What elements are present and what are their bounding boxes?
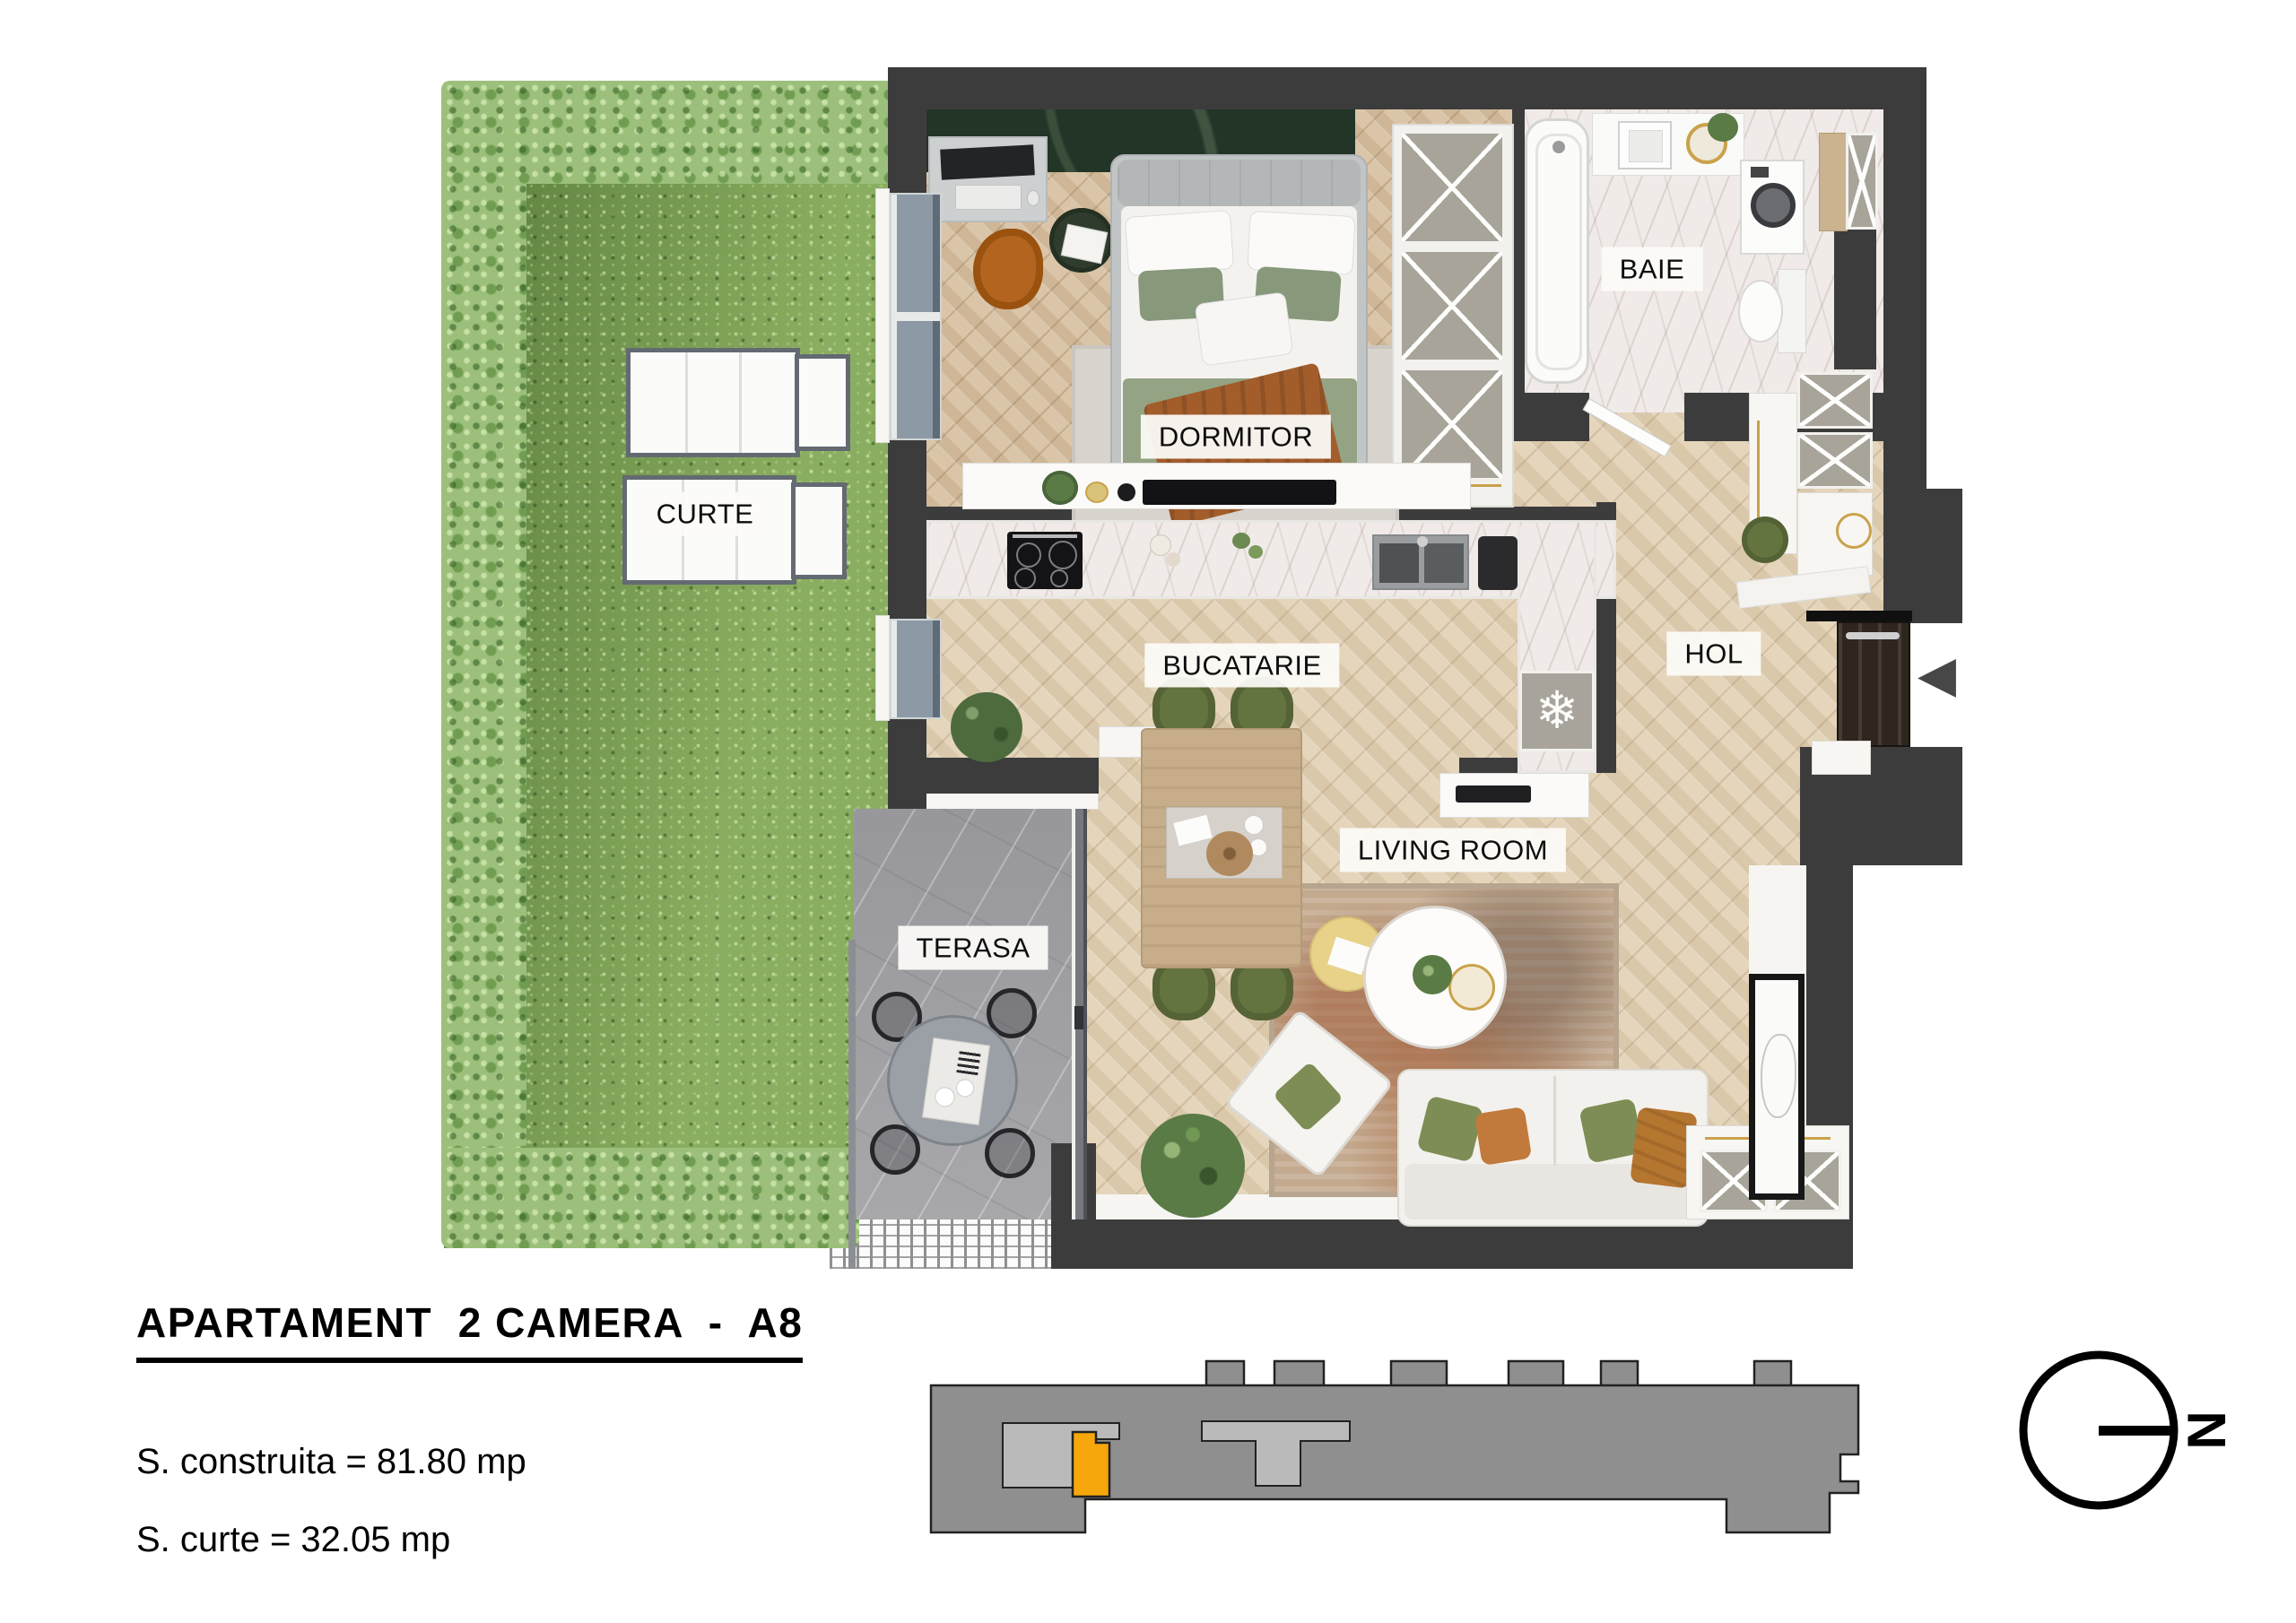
entrance-arrow-icon: ◀ (1918, 649, 1956, 699)
plan-title: APARTAMENT 2 CAMERA - A8 (136, 1298, 803, 1363)
nightstand (1049, 208, 1114, 273)
pillow-white (1125, 210, 1234, 276)
table-plant (1413, 955, 1452, 994)
black-dish (1118, 483, 1135, 501)
terrace-sliding-door (1072, 809, 1087, 1219)
locator-highlighted-unit (1073, 1432, 1109, 1497)
kitchen-plant (951, 692, 1022, 762)
wall-bath-inner-right (1834, 224, 1876, 369)
burner (1050, 569, 1068, 587)
exterior-mask (1853, 865, 1979, 1273)
locator-notch (1509, 1361, 1563, 1388)
pillow-white (1247, 211, 1355, 275)
sink-basin (1379, 543, 1419, 583)
sun-lounger (626, 348, 800, 457)
wall-left-upper (888, 109, 926, 195)
lounger-seam (739, 352, 742, 453)
hall-stool-green (1742, 516, 1788, 563)
room-label-living: LIVING ROOM (1340, 829, 1566, 872)
wall-top (888, 67, 1926, 109)
building-locator (915, 1347, 1901, 1553)
locator-notch (1754, 1361, 1791, 1388)
locator-notch (1601, 1361, 1638, 1388)
locator-notch (1206, 1361, 1244, 1388)
burner (1014, 568, 1036, 589)
napkin (1173, 815, 1212, 846)
bath-sink (1618, 121, 1672, 169)
dried-plant (1206, 831, 1253, 876)
burner (1016, 542, 1041, 568)
coffee-machine (1478, 536, 1518, 590)
television (1143, 480, 1336, 505)
wall-kitchen-terrace (926, 758, 1099, 794)
counter-plate (1166, 552, 1180, 567)
monitor (940, 144, 1035, 179)
wall-right-upper (1883, 109, 1926, 623)
room-label-bucatarie: BUCATARIE (1144, 644, 1339, 688)
living-plant (1141, 1114, 1245, 1218)
cabinet-handle (1757, 421, 1760, 528)
terrace-table (887, 1015, 1018, 1146)
wall-right-jut-lower (1926, 747, 1962, 865)
bedroom-window (890, 193, 942, 440)
plate (955, 1078, 976, 1098)
entrance-sill (1812, 741, 1871, 775)
tv-console (962, 463, 1471, 509)
window-sill (875, 188, 890, 443)
picture-frame (1749, 974, 1805, 1200)
door-handle (1846, 632, 1900, 639)
counter-herbs (1232, 533, 1250, 549)
sun-lounger-back (795, 354, 850, 451)
burner (1048, 541, 1077, 569)
sink-basin (1629, 130, 1663, 162)
door-handle (1074, 1006, 1083, 1029)
bed-headboard (1118, 160, 1361, 206)
entrance-door (1837, 621, 1910, 747)
keyboard (955, 185, 1022, 210)
bathtub (1525, 118, 1589, 384)
counter-herbs (1248, 545, 1263, 559)
desk (928, 136, 1048, 222)
wall-bath-bottom-left (1514, 393, 1589, 441)
coffee-table (1363, 906, 1507, 1049)
terrace-chair (985, 1128, 1035, 1178)
bathtub-faucet (1552, 141, 1565, 153)
compass-north-label: N (2177, 1410, 2237, 1449)
hedge-bottom (441, 1148, 859, 1248)
wall-right-jut-upper (1926, 489, 1962, 623)
desk-chair (973, 229, 1043, 309)
bedroom-wardrobe (1392, 124, 1514, 508)
book (1061, 224, 1108, 265)
room-label-curte: CURTE (639, 492, 772, 536)
cutlery (956, 1049, 980, 1075)
wardrobe-x-panel (1399, 131, 1505, 244)
washer-panel (1751, 167, 1769, 178)
sofa (1397, 1069, 1709, 1227)
lounge-pillow-green (1273, 1062, 1344, 1133)
room-label-hol: HOL (1666, 632, 1761, 676)
bath-plant (1708, 113, 1738, 142)
wall-bottom (1051, 1219, 1853, 1269)
kitchen-sideboard (1439, 773, 1589, 818)
pillow-green (1416, 1095, 1483, 1162)
entrance-lintel (1806, 611, 1912, 621)
wall-left-mid (888, 438, 926, 623)
info-block: APARTAMENT 2 CAMERA - A8 S. construita =… (136, 1298, 803, 1560)
bath-wood-shelf (1819, 133, 1848, 231)
console-plant (1042, 471, 1078, 505)
sofa-seat-seam (1553, 1076, 1556, 1166)
floor-plan-canvas: ◀ (0, 0, 2296, 1623)
soundbar (1456, 785, 1531, 803)
washing-machine (1740, 160, 1805, 255)
serving-tray (1166, 807, 1283, 879)
plate (1244, 815, 1264, 835)
gold-tray (1448, 964, 1495, 1011)
toilet-bowl (1738, 280, 1783, 343)
window-mullion (891, 312, 940, 321)
snowflake-icon: ❄ (1535, 685, 1579, 737)
refrigerator: ❄ (1519, 671, 1595, 751)
frame-art (1761, 1034, 1796, 1118)
gold-dish (1085, 482, 1109, 503)
bathtub-inner (1535, 134, 1582, 370)
washer-door (1751, 183, 1796, 228)
area-courtyard: S. curte = 32.05 mp (136, 1520, 803, 1560)
gold-ring-handle (1836, 513, 1872, 549)
locator-notch (1391, 1361, 1447, 1388)
hedge-left (441, 81, 526, 1248)
compass-icon: N (2016, 1343, 2276, 1532)
terrace-fence (848, 940, 856, 1269)
wall-bedroom-bath (1512, 109, 1525, 412)
hall-x-cabinet (1797, 372, 1873, 429)
wardrobe-x-panel (1399, 249, 1505, 362)
pillow-orange (1474, 1107, 1532, 1166)
bath-x-cabinet (1846, 133, 1878, 230)
wall-left-lower (888, 713, 926, 809)
lounger-seam (685, 352, 688, 453)
room-label-dormitor: DORMITOR (1141, 415, 1331, 459)
hall-x-cabinet (1797, 432, 1873, 489)
pillow-small-white (1195, 291, 1294, 367)
plate (934, 1086, 956, 1108)
cooktop (1007, 532, 1083, 589)
area-built: S. construita = 81.80 mp (136, 1442, 803, 1482)
terrace-tray (922, 1037, 990, 1125)
sink-faucet (1417, 536, 1428, 547)
sun-lounger-back (791, 482, 847, 579)
cooktop-handle (1013, 534, 1077, 538)
locator-notch (1274, 1361, 1324, 1388)
hall-console (1797, 492, 1873, 576)
mouse (1027, 190, 1039, 206)
room-label-baie: BAIE (1602, 247, 1703, 291)
sink-basin (1424, 543, 1464, 583)
counter-plate (1150, 534, 1171, 556)
kitchen-window (890, 619, 942, 719)
window-sill (875, 615, 890, 721)
room-label-terasa: TERASA (898, 926, 1048, 970)
kitchen-sink (1372, 534, 1469, 590)
dining-table (1141, 728, 1302, 968)
compass-needle (2099, 1426, 2174, 1436)
